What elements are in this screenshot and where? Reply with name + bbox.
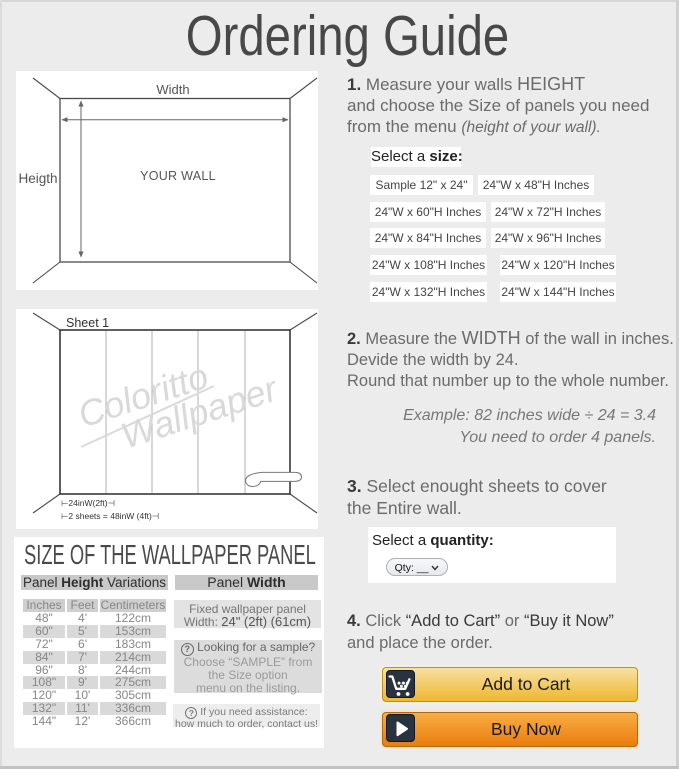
- svg-text:Width: Width: [156, 82, 189, 97]
- svg-text:Heigth: Heigth: [18, 171, 57, 186]
- svg-text:Sheet 1: Sheet 1: [66, 316, 109, 330]
- svg-text:⊢2 sheets = 48inW (4ft)⊣: ⊢2 sheets = 48inW (4ft)⊣: [61, 511, 160, 521]
- svg-text:YOUR WALL: YOUR WALL: [140, 169, 216, 183]
- svg-text:⊢24inW(2ft)⊣: ⊢24inW(2ft)⊣: [61, 498, 116, 508]
